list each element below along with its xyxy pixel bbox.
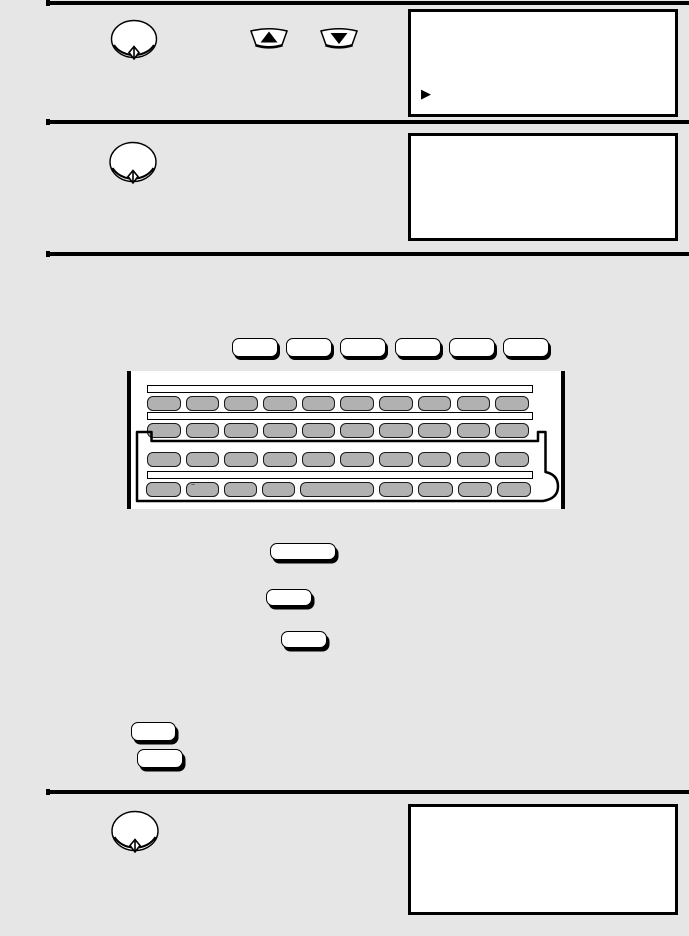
keyboard-row-1: [147, 396, 529, 411]
keyboard-key[interactable]: [302, 396, 336, 411]
keyboard-key[interactable]: [186, 423, 220, 438]
keyboard-key[interactable]: [495, 396, 529, 411]
keyboard-key[interactable]: [263, 452, 297, 467]
down-arrow-key[interactable]: [318, 26, 360, 50]
keyboard-key[interactable]: [302, 452, 336, 467]
down-arrow-icon: [318, 26, 360, 50]
keyboard-key[interactable]: [340, 396, 374, 411]
keyboard-key[interactable]: [379, 396, 413, 411]
standalone-key-1[interactable]: [270, 543, 336, 560]
section-rule-3: [46, 252, 689, 256]
function-key[interactable]: [340, 338, 386, 357]
section-rule-1: [46, 1, 689, 5]
right-triangle-cursor: ▶: [421, 87, 431, 100]
standalone-key-2[interactable]: [266, 589, 312, 606]
function-key-row: [232, 338, 549, 357]
keyboard-key[interactable]: [262, 482, 295, 497]
keyboard-key[interactable]: [147, 423, 181, 438]
keyboard-key[interactable]: [224, 423, 258, 438]
up-arrow-key[interactable]: [248, 26, 290, 50]
keyboard-key[interactable]: [379, 452, 413, 467]
lcd-display-3: [408, 804, 678, 915]
manual-page: ▶ ~: [0, 0, 689, 936]
keyboard-row-3: [147, 452, 529, 467]
standalone-key-4[interactable]: [131, 722, 176, 741]
function-key[interactable]: [232, 338, 278, 357]
start-key-shape: [108, 141, 158, 187]
section-rule-4: [46, 790, 689, 794]
keyboard-key[interactable]: [147, 396, 181, 411]
standalone-key-5[interactable]: [137, 749, 183, 768]
keyboard-key[interactable]: [418, 396, 452, 411]
keyboard-key[interactable]: [497, 482, 531, 497]
space-key[interactable]: [300, 482, 374, 497]
keyboard-key[interactable]: ~: [186, 482, 219, 497]
keyboard-key[interactable]: [379, 423, 413, 438]
keyboard-key[interactable]: [147, 452, 181, 467]
keyboard-key[interactable]: [263, 423, 297, 438]
keyboard-key[interactable]: [186, 396, 220, 411]
keyboard-key[interactable]: [418, 423, 452, 438]
keyboard-key[interactable]: [146, 482, 181, 497]
keyboard-key[interactable]: [263, 396, 297, 411]
keyboard-key[interactable]: [186, 452, 220, 467]
keyboard-key[interactable]: [302, 423, 336, 438]
keyboard-key[interactable]: [379, 482, 413, 497]
keyboard-blank-strip-2: [147, 412, 533, 420]
section-rule-2: [46, 120, 689, 124]
keyboard-key[interactable]: [495, 452, 529, 467]
start-key-button[interactable]: [109, 18, 159, 64]
function-key[interactable]: [449, 338, 495, 357]
keyboard-key[interactable]: [418, 482, 453, 497]
start-key-shape: [109, 18, 159, 64]
function-key[interactable]: [395, 338, 441, 357]
keyboard-key[interactable]: [457, 396, 491, 411]
keyboard-blank-strip-1: [147, 385, 533, 393]
keyboard-key[interactable]: [457, 452, 491, 467]
function-key[interactable]: [503, 338, 549, 357]
keyboard-right-bar: [561, 371, 565, 509]
keyboard-row-2: [147, 423, 529, 438]
key-mark: ~: [191, 482, 195, 489]
keyboard-blank-strip-3: [147, 471, 533, 479]
start-key-button[interactable]: [108, 141, 158, 187]
keyboard-key[interactable]: [224, 396, 258, 411]
keyboard-key[interactable]: [340, 423, 374, 438]
up-arrow-icon: [248, 26, 290, 50]
keyboard-key[interactable]: [340, 452, 374, 467]
function-key[interactable]: [286, 338, 332, 357]
start-key-button[interactable]: [110, 810, 160, 856]
keyboard-key[interactable]: [457, 423, 491, 438]
keyboard-key[interactable]: [418, 452, 452, 467]
keyboard-key[interactable]: [224, 452, 258, 467]
keyboard: ~: [131, 371, 561, 509]
start-key-shape: [110, 810, 160, 856]
lcd-display-2: [408, 133, 678, 241]
keyboard-key[interactable]: [458, 482, 492, 497]
lcd-display-1: ▶: [408, 9, 678, 117]
standalone-key-3[interactable]: [281, 631, 327, 648]
keyboard-row-4: ~: [146, 482, 531, 497]
keyboard-key[interactable]: [495, 423, 529, 438]
keyboard-key[interactable]: [224, 482, 257, 497]
